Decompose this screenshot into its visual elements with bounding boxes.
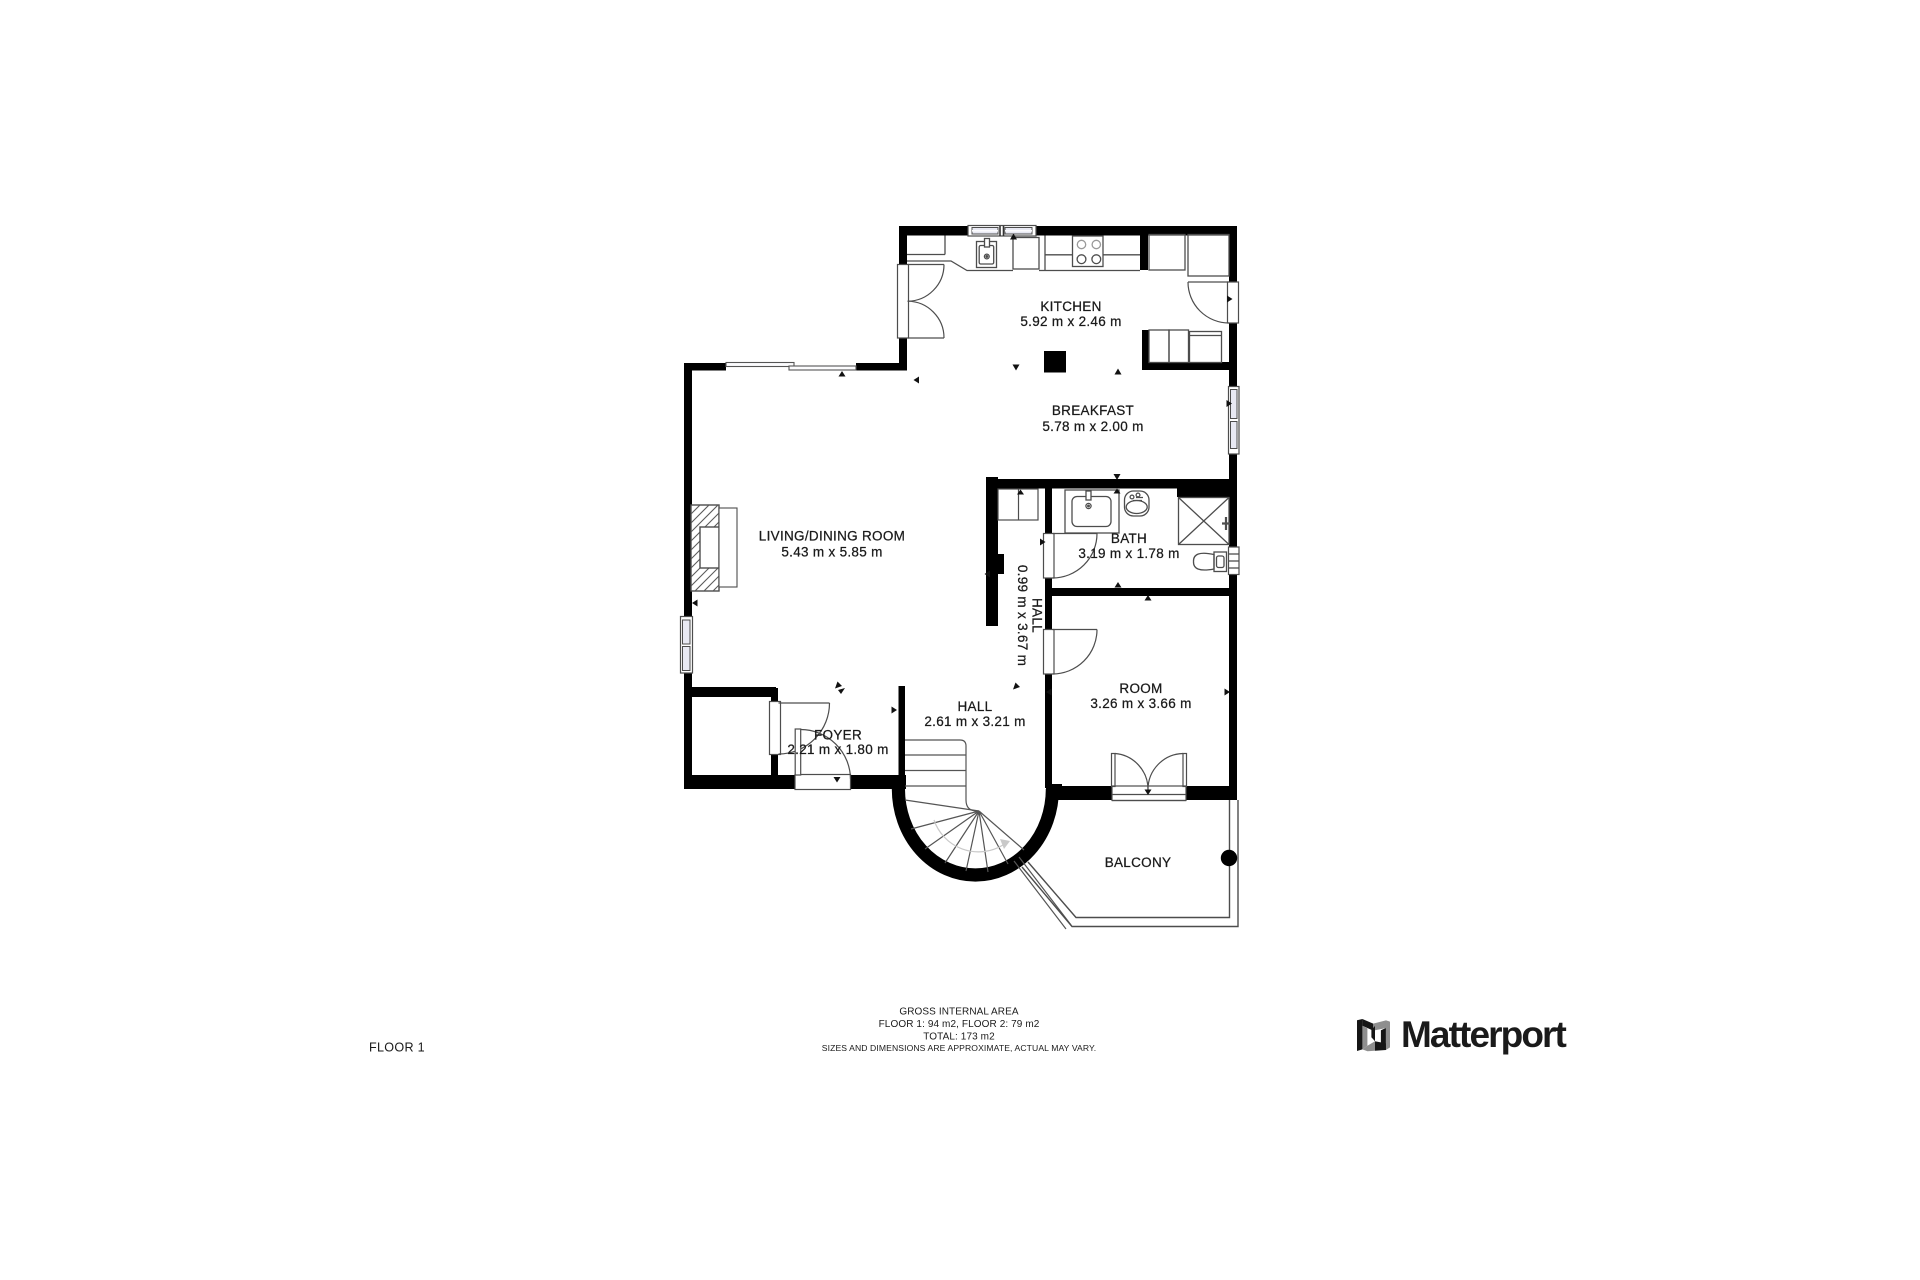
svg-text:3.26 m x 3.66 m: 3.26 m x 3.66 m [1090,696,1191,711]
svg-text:LIVING/DINING ROOM: LIVING/DINING ROOM [759,529,905,544]
svg-text:FLOOR 1: FLOOR 1 [369,1041,425,1055]
svg-text:5.78 m x 2.00 m: 5.78 m x 2.00 m [1042,419,1143,434]
svg-text:SIZES AND DIMENSIONS ARE APPRO: SIZES AND DIMENSIONS ARE APPROXIMATE, AC… [822,1043,1096,1053]
svg-text:ROOM: ROOM [1119,681,1162,696]
svg-text:2.21 m x 1.80 m: 2.21 m x 1.80 m [787,742,888,757]
svg-text:BATH: BATH [1111,531,1147,546]
svg-text:KITCHEN: KITCHEN [1040,299,1101,314]
svg-text:BALCONY: BALCONY [1105,855,1172,870]
svg-text:FLOOR 1: 94 m2, FLOOR 2: 79 m2: FLOOR 1: 94 m2, FLOOR 2: 79 m2 [879,1019,1040,1030]
svg-text:BREAKFAST: BREAKFAST [1052,403,1134,418]
svg-text:TOTAL: 173 m2: TOTAL: 173 m2 [923,1032,995,1043]
svg-text:2.61 m x 3.21 m: 2.61 m x 3.21 m [924,714,1025,729]
svg-text:0.99 m x 3.67 m: 0.99 m x 3.67 m [1015,565,1030,666]
svg-text:GROSS INTERNAL AREA: GROSS INTERNAL AREA [899,1007,1019,1018]
svg-text:3.19 m x 1.78 m: 3.19 m x 1.78 m [1078,546,1179,561]
svg-text:Matterport: Matterport [1401,1014,1567,1055]
svg-text:5.92 m x 2.46 m: 5.92 m x 2.46 m [1020,314,1121,329]
svg-text:HALL: HALL [958,699,993,714]
svg-text:5.43 m x 5.85 m: 5.43 m x 5.85 m [781,545,882,560]
svg-text:FOYER: FOYER [814,728,862,743]
svg-text:HALL: HALL [1030,598,1045,633]
